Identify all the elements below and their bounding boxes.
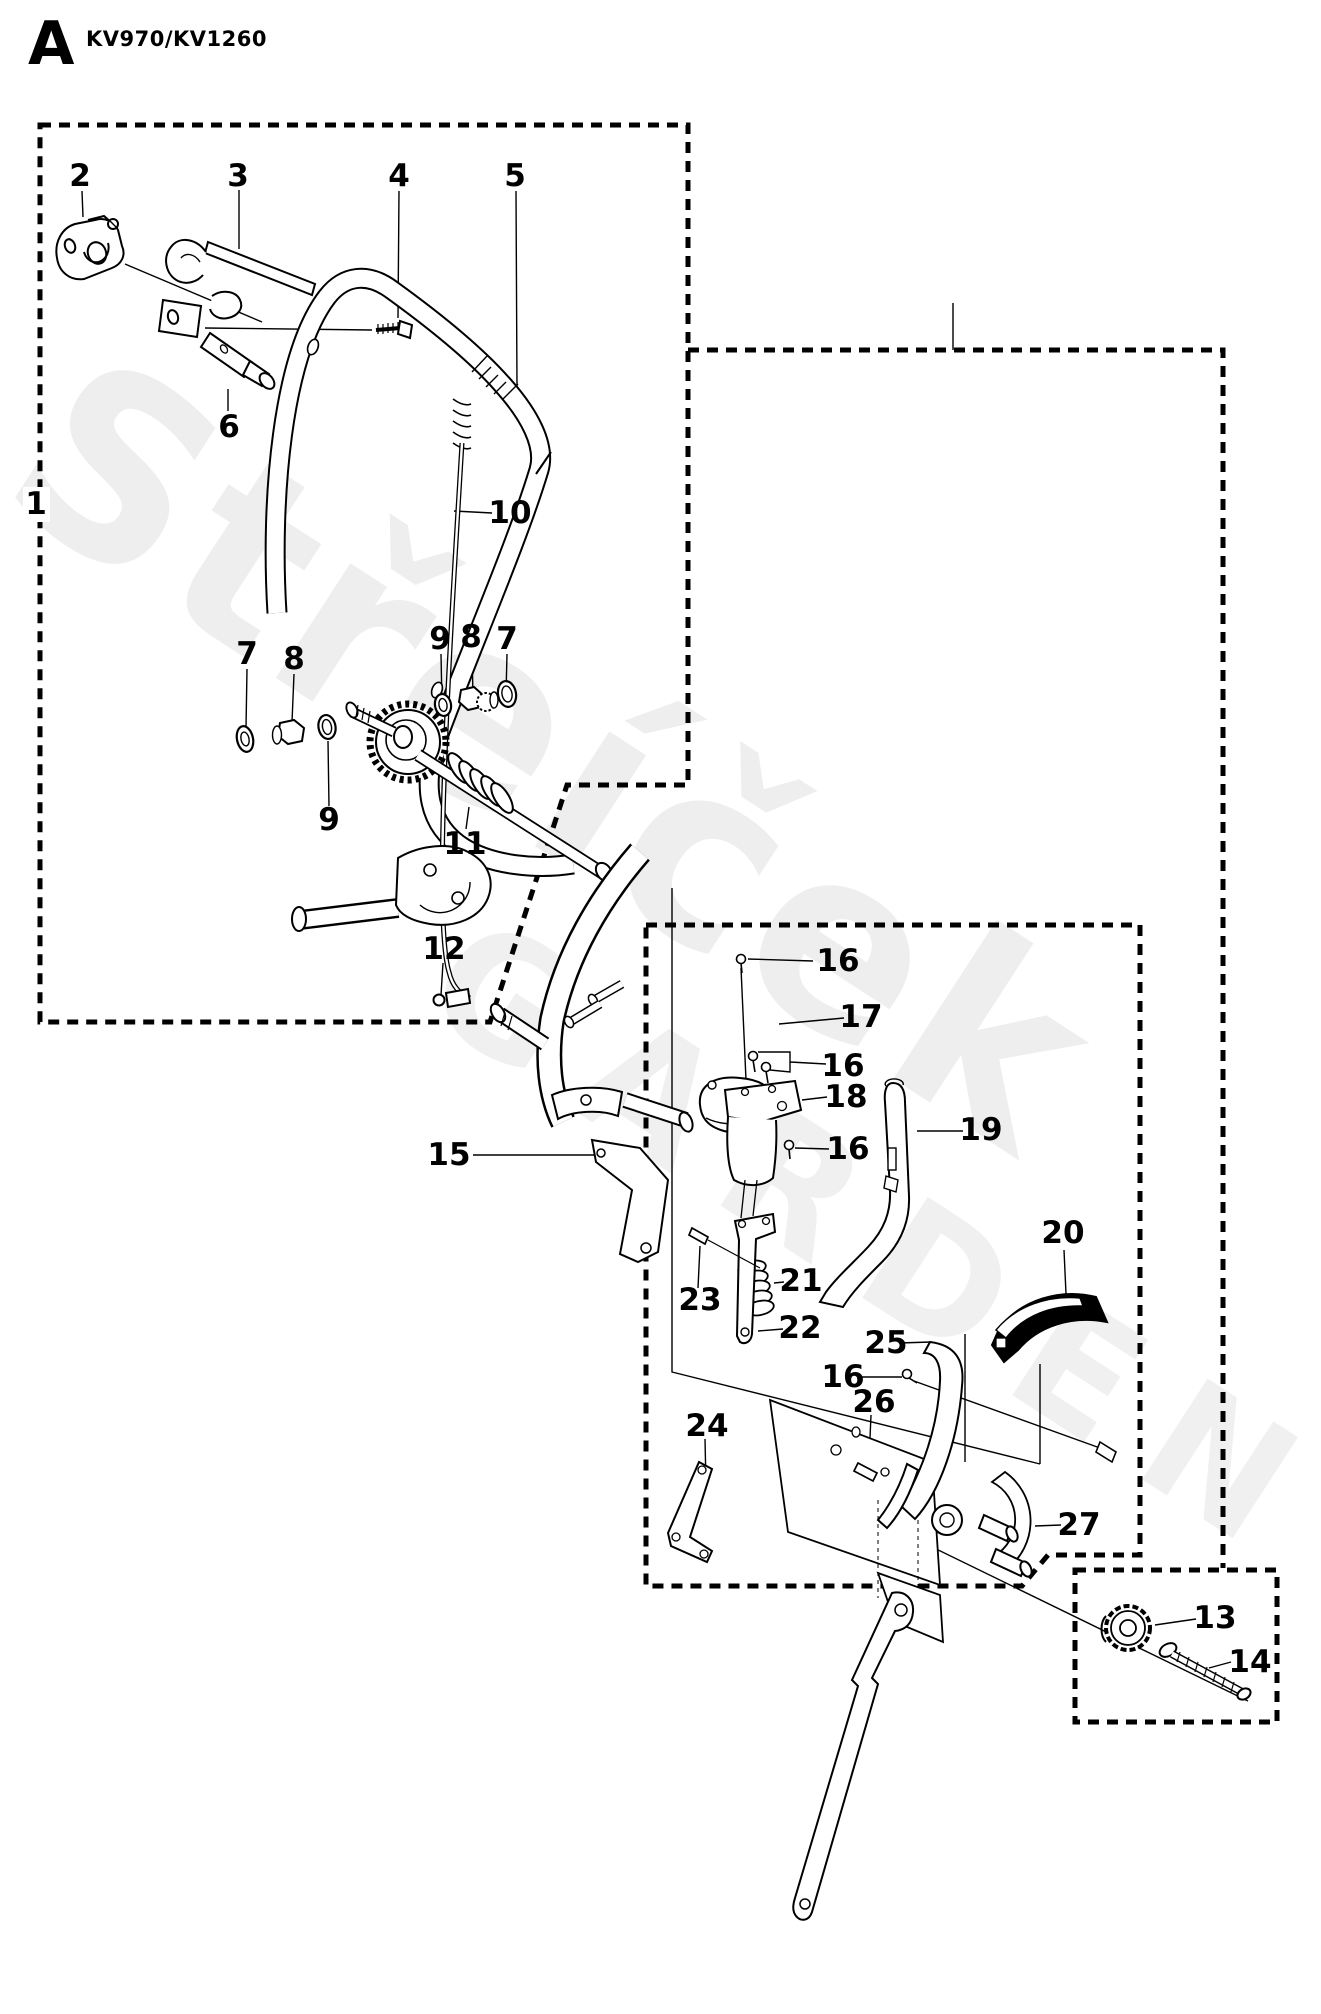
callout-17: 17 xyxy=(839,999,882,1035)
part-handwheel-13 xyxy=(1102,1606,1151,1650)
callout-10: 10 xyxy=(488,495,531,531)
callout-15: 15 xyxy=(427,1137,470,1173)
callout-8: 8 xyxy=(283,641,305,677)
part-handle-clamp-2 xyxy=(56,216,123,279)
callout-11: 11 xyxy=(443,826,486,862)
callout-20: 20 xyxy=(1041,1215,1084,1251)
callout-13: 13 xyxy=(1193,1600,1236,1636)
callout-14: 14 xyxy=(1228,1644,1271,1680)
callout-21: 21 xyxy=(779,1263,822,1299)
part-strip-25 xyxy=(878,1342,963,1528)
callout-23: 23 xyxy=(678,1282,721,1318)
part-lever-22 xyxy=(735,1214,775,1343)
callout-3: 3 xyxy=(227,158,249,194)
callout-16: 16 xyxy=(816,943,859,979)
callout-16: 16 xyxy=(826,1131,869,1167)
callout-7: 7 xyxy=(496,621,518,657)
callout-2: 2 xyxy=(69,158,91,194)
callout-9: 9 xyxy=(429,621,451,657)
frame-tube-assembly xyxy=(292,846,695,1262)
cable-spring xyxy=(453,399,471,449)
exploded-parts-diagram: 1234567899871011121516171618161920212223… xyxy=(0,0,1321,2014)
callout-7: 7 xyxy=(236,636,258,672)
callout-27: 27 xyxy=(1057,1507,1100,1543)
callout-26: 26 xyxy=(852,1384,895,1420)
assembly-box-1 xyxy=(40,125,688,1022)
callout-labels: 1234567899871011121516171618161920212223… xyxy=(25,158,1271,1680)
callout-24: 24 xyxy=(685,1408,728,1444)
parts-diagram-page: A KV970/KV1260 Střeíček GARDEN xyxy=(0,0,1321,2014)
callout-4: 4 xyxy=(388,158,410,194)
callout-9: 9 xyxy=(318,802,340,838)
callout-12: 12 xyxy=(422,931,465,967)
part-pin-6 xyxy=(201,333,277,392)
callout-22: 22 xyxy=(778,1310,821,1346)
callout-25: 25 xyxy=(864,1325,907,1361)
part-bracket-24 xyxy=(668,1462,712,1562)
part-screw-4 xyxy=(376,321,412,338)
leader-lines xyxy=(82,190,1248,1701)
part-handle-20 xyxy=(992,1294,1107,1362)
callout-8: 8 xyxy=(460,619,482,655)
part-control-lever xyxy=(793,1592,913,1919)
callout-1: 1 xyxy=(25,486,47,522)
callout-5: 5 xyxy=(504,158,526,194)
callout-18: 18 xyxy=(824,1079,867,1115)
callout-19: 19 xyxy=(959,1112,1002,1148)
callout-6: 6 xyxy=(218,409,240,445)
